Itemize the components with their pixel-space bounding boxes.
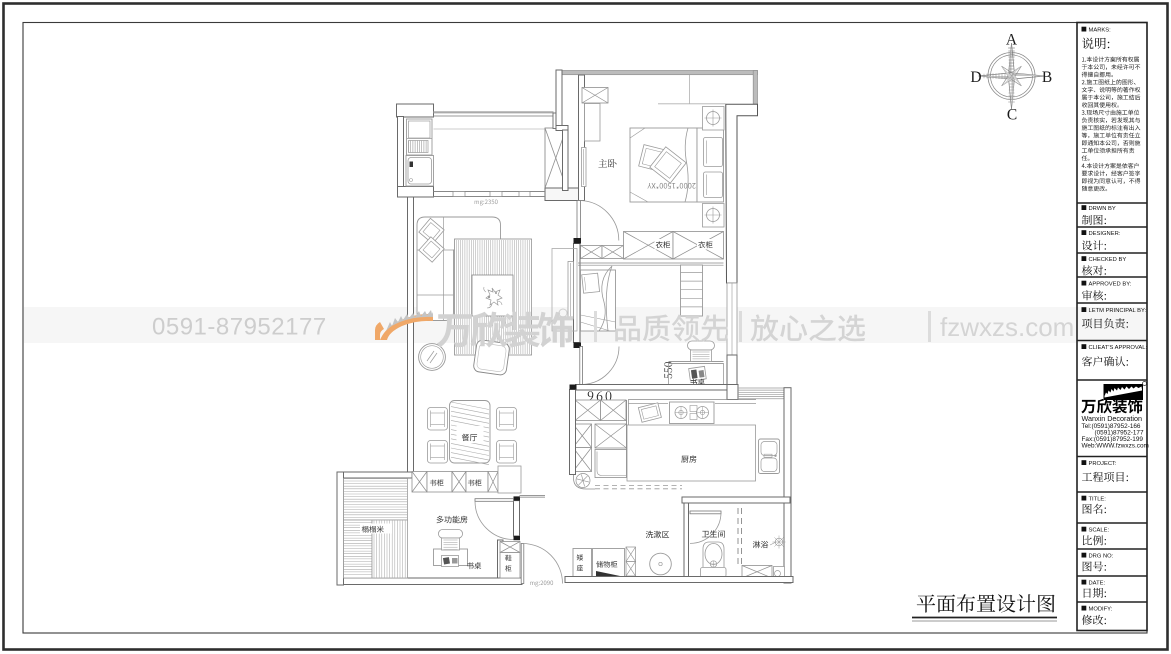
svg-text:MARKS:: MARKS: xyxy=(1089,28,1112,34)
svg-text:DRG NO:: DRG NO: xyxy=(1089,554,1114,560)
svg-text:APPROVED BY:: APPROVED BY: xyxy=(1089,282,1132,288)
svg-text:LETM PRINCIPAL BY:: LETM PRINCIPAL BY: xyxy=(1089,308,1147,314)
svg-text:MODIFY:: MODIFY: xyxy=(1089,607,1113,613)
svg-text:TITLE:: TITLE: xyxy=(1089,497,1107,503)
svg-text:D: D xyxy=(970,69,981,86)
svg-text:Web:WWW.fzwxzs.com: Web:WWW.fzwxzs.com xyxy=(1082,443,1149,450)
svg-text:DATE:: DATE: xyxy=(1089,581,1106,587)
svg-text:C: C xyxy=(1007,107,1017,124)
svg-text:CLIEAT'S APPROVAL:: CLIEAT'S APPROVAL: xyxy=(1089,345,1148,351)
svg-text:DESIGNER:: DESIGNER: xyxy=(1089,231,1121,237)
svg-text:0591-87952177: 0591-87952177 xyxy=(152,314,327,341)
svg-text:fzwxzs.com: fzwxzs.com xyxy=(940,312,1074,342)
svg-text:DRWN BY: DRWN BY xyxy=(1089,206,1116,212)
svg-text:B: B xyxy=(1042,69,1052,86)
svg-text:PROJECT:: PROJECT: xyxy=(1089,461,1117,467)
svg-text:SCALE:: SCALE: xyxy=(1089,528,1110,534)
svg-text:Wanxin Decoration: Wanxin Decoration xyxy=(1082,414,1142,423)
svg-text:CHECKED BY: CHECKED BY xyxy=(1089,257,1127,263)
svg-text:A: A xyxy=(1006,32,1018,49)
